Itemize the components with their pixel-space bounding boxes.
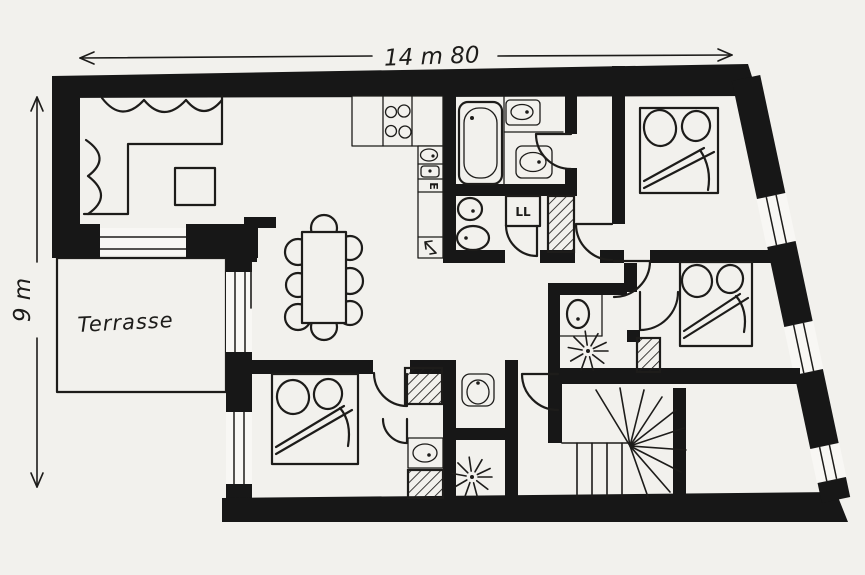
dining-table (302, 232, 346, 323)
wall-hall-north-a (443, 250, 505, 263)
wall-wc-shower-divider (456, 428, 505, 440)
duct-shower-mid (637, 338, 660, 372)
height-dimension-label: 9 m (10, 278, 36, 322)
double-bed-mid-right (680, 262, 752, 346)
wall-shower-west (548, 295, 560, 375)
wall-vestibule-b (565, 168, 577, 196)
wall-bath-south (456, 184, 565, 196)
wall-kitchen-bath (443, 94, 456, 263)
wall-vestibule-a (565, 96, 577, 134)
wall-stairs-east (673, 388, 686, 498)
wall-bedroom3-north-a (252, 360, 373, 374)
double-bed-bottom-left (272, 374, 358, 464)
duct-bedroom3-ne (405, 368, 442, 404)
floor-plan-svg: 14 m 80 9 m (0, 0, 865, 575)
kitchen-appliance-label: E (427, 182, 440, 190)
wall-corridor-west (505, 360, 518, 498)
wall-bedroom2-south (560, 368, 800, 384)
terrace-label: Terrasse (77, 308, 174, 337)
kitchen-counter-top (352, 96, 443, 146)
scanned-floor-plan: 14 m 80 9 m (0, 0, 865, 575)
wall-bedroom1-west (612, 66, 625, 224)
wall-shower-north (548, 283, 627, 295)
width-dimension-label: 14 m 80 (384, 42, 480, 71)
wall-west-mid-b (226, 352, 252, 412)
wall-living-south-a (52, 224, 100, 258)
washing-machine-label: LL (515, 205, 531, 219)
coffee-table (175, 168, 215, 205)
wall-bedroom3-east (443, 360, 456, 498)
duct-laundry (548, 196, 574, 252)
double-bed-top-right (640, 108, 718, 193)
duct-bedroom3-se (408, 470, 443, 498)
